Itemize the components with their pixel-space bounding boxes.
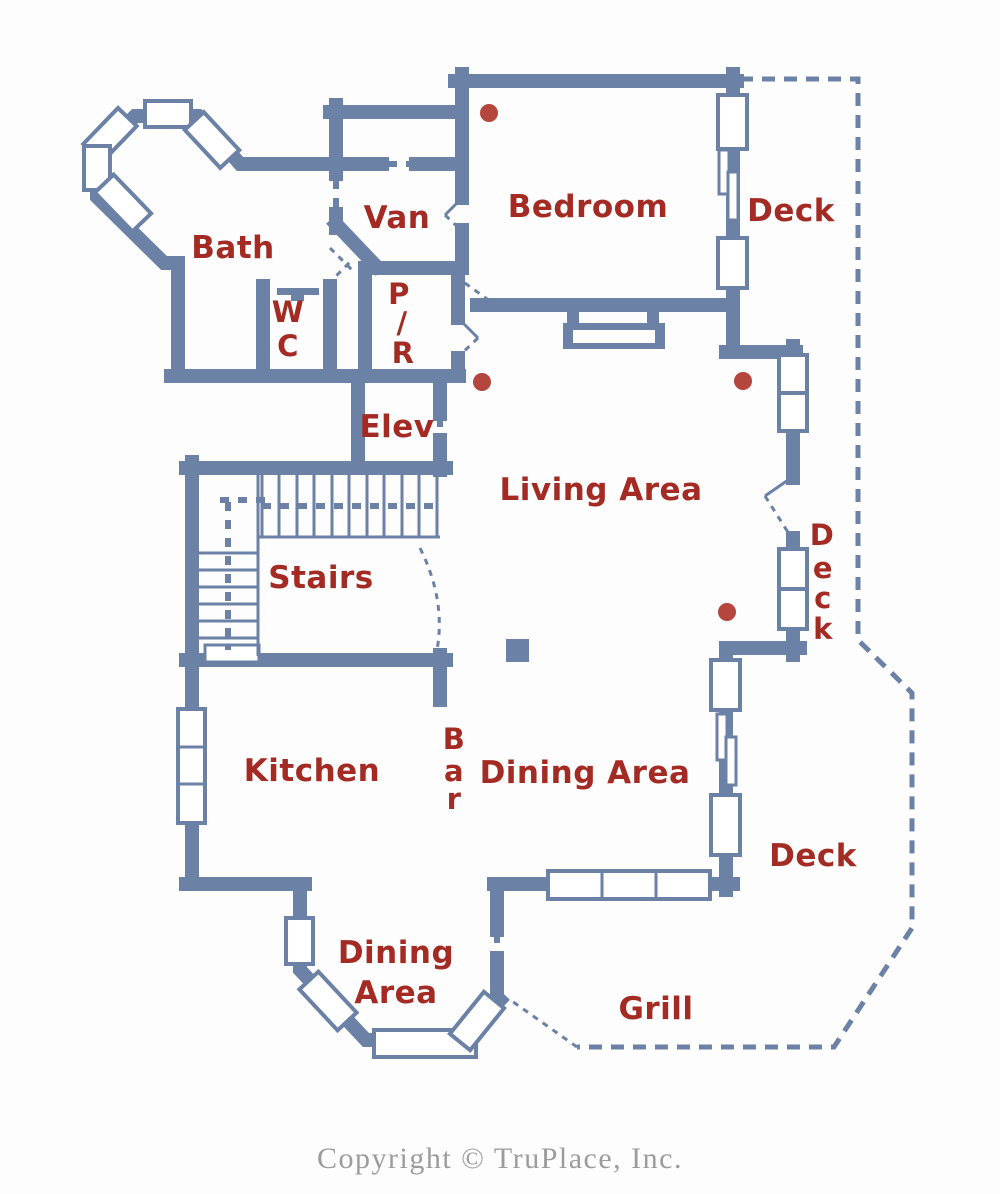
room-label-kitchen: Kitchen	[244, 753, 381, 789]
room-label-van: Van	[364, 200, 431, 236]
room-label-dining-area: Dining Area	[480, 755, 691, 791]
room-label-grill: Grill	[618, 991, 693, 1027]
window-bay-sw	[299, 972, 356, 1031]
room-label-pr-slash: /	[396, 306, 407, 340]
slider-bedroom-deck-b	[728, 172, 738, 220]
room-label-stairs: Stairs	[268, 560, 373, 596]
room-label-dining-bay-2: Area	[354, 975, 437, 1011]
room-label-pr-r: R	[392, 336, 415, 370]
window-living-2	[779, 393, 807, 431]
room-label-living-area: Living Area	[500, 472, 703, 508]
window-bay-left	[286, 918, 313, 964]
window-bedroom-1	[718, 95, 747, 149]
room-labels: Bath Van Bedroom Deck W C P / R Elev Liv…	[191, 189, 857, 1027]
room-label-deck-right-k: k	[813, 612, 833, 646]
window-turret-ne	[185, 112, 239, 168]
ceiling-fixture-dot-living-right	[734, 372, 752, 390]
room-label-deck-top: Deck	[747, 193, 836, 229]
room-label-deck-bottom: Deck	[769, 838, 858, 874]
room-label-elevator: Elev	[359, 409, 434, 445]
room-label-bar-r: r	[447, 782, 462, 816]
room-label-dining-bay-1: Dining	[338, 935, 454, 971]
ceiling-fixture-dot-living-left	[473, 373, 491, 391]
fireplace-firebox	[573, 330, 655, 343]
room-label-deck-right-c: c	[814, 581, 832, 615]
window-turret-top	[145, 101, 191, 127]
room-label-wc-c: C	[277, 329, 299, 363]
ceiling-fixture-dot-bedroom	[480, 104, 498, 122]
window-kitchen-triple	[178, 709, 205, 823]
room-label-wc-w: W	[272, 295, 305, 329]
living-area-column	[506, 639, 529, 662]
window-dining-1	[711, 660, 740, 710]
door-arc-van	[330, 248, 354, 272]
door-arc-living-deck	[765, 496, 791, 537]
room-label-bedroom: Bedroom	[508, 189, 669, 225]
stairs-curve-guide	[420, 548, 439, 650]
opening-under-stairs	[205, 645, 259, 662]
window-turret-sw	[95, 175, 151, 232]
grill-outline-joint	[509, 999, 577, 1047]
floor-plan-page: Bath Van Bedroom Deck W C P / R Elev Liv…	[0, 0, 1000, 1194]
window-dining-2	[711, 795, 740, 855]
floor-plan-svg: Bath Van Bedroom Deck W C P / R Elev Liv…	[0, 0, 1000, 1194]
room-label-deck-right-e: e	[813, 551, 833, 585]
door-leaf-bedroom	[445, 198, 462, 215]
room-label-bath: Bath	[191, 230, 274, 266]
door-leaf-living-deck	[765, 478, 791, 496]
room-label-bar-b: B	[443, 722, 466, 756]
window-bay-se	[450, 992, 504, 1050]
room-label-deck-right-d: D	[810, 518, 835, 552]
window-living-1	[779, 355, 807, 393]
copyright-text: Copyright © TruPlace, Inc.	[317, 1142, 683, 1175]
window-living-4	[779, 589, 807, 629]
window-living-3	[779, 549, 807, 589]
window-bedroom-2	[718, 238, 747, 288]
door-leaf-powder-room	[458, 318, 478, 338]
ceiling-fixture-dot-dining	[718, 603, 736, 621]
slider-dining-deck-b	[726, 737, 736, 785]
window-dining-triple	[548, 871, 710, 899]
